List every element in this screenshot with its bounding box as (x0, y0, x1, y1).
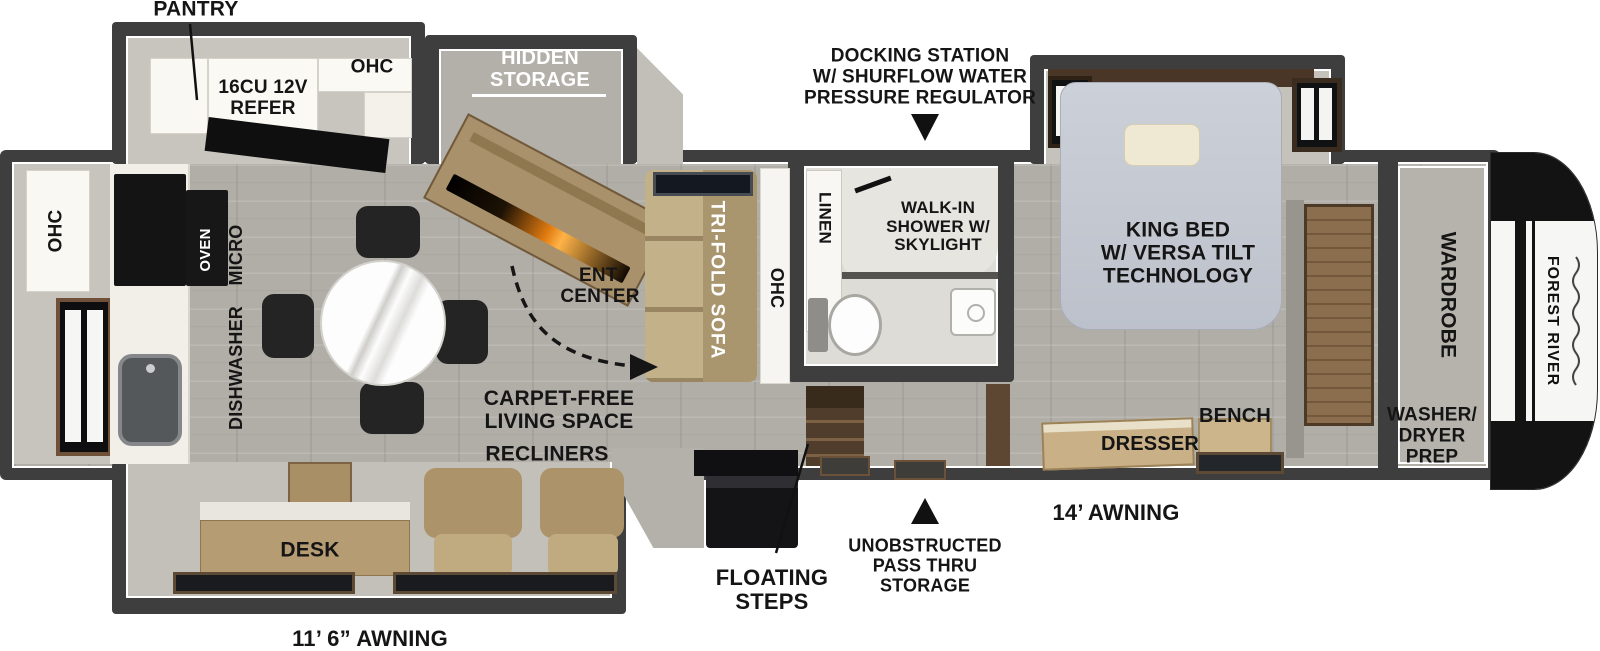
label-shower: WALK-INSHOWER W/SKYLIGHT (886, 199, 990, 255)
dresser-top (1043, 419, 1191, 432)
label-awning-left: 11’ 6” AWNING (292, 627, 448, 651)
front-cap-squiggle-icon (1567, 253, 1585, 393)
arrow-down-icon (911, 114, 939, 141)
label-pass-thru: UNOBSTRUCTEDPASS THRUSTORAGE (848, 536, 1001, 595)
window-pane (1319, 88, 1332, 140)
dinette-table (320, 260, 446, 386)
entry-mat (694, 450, 798, 476)
dinette-chair (262, 294, 314, 358)
closet-sliding-door (1304, 204, 1374, 426)
recliner-seat (548, 534, 618, 576)
window-pane (65, 310, 81, 442)
label-awning-right: 14’ AWNING (1052, 501, 1179, 525)
arrow-up-icon (911, 498, 939, 524)
pass-thru-hatch (820, 456, 870, 476)
label-dishwasher: DISHWASHER (227, 306, 247, 430)
hidden-storage-underline (472, 94, 606, 97)
entry-step-top (706, 476, 798, 488)
front-cap-bottom-band (1491, 421, 1598, 490)
faucet (146, 364, 155, 373)
window-pane (1301, 88, 1314, 140)
label-refer: 16CU 12VREFER (218, 78, 307, 120)
label-washer-dryer: WASHER/DRYERPREP (1387, 406, 1477, 469)
recliner-seat (434, 534, 512, 576)
kitchen-sink (118, 354, 182, 446)
label-recliners: RECLINERS (485, 442, 608, 465)
pass-thru-hatch (894, 460, 946, 480)
desk-top (200, 502, 410, 520)
label-desk: DESK (280, 538, 339, 561)
sofa-cushions (645, 170, 703, 382)
label-tri-fold-sofa: TRI-FOLD SOFA (706, 201, 727, 360)
range-cooktop (114, 174, 186, 286)
bedroom-partition (1286, 200, 1304, 458)
label-linen: LINEN (815, 192, 834, 244)
label-hidden-storage: HIDDENSTORAGE (490, 47, 590, 91)
label-floating-steps: FLOATINGSTEPS (716, 566, 828, 614)
king-bed (1060, 82, 1282, 330)
label-docking-station: DOCKING STATIONW/ SHURFLOW WATERPRESSURE… (804, 47, 1036, 110)
front-cap-stripe-thin (1532, 217, 1535, 425)
label-ohc-sofa: OHC (766, 268, 786, 309)
label-ohc-top: OHC (351, 58, 394, 79)
label-dresser: DRESSER (1101, 433, 1199, 455)
sofa-window (653, 172, 753, 196)
front-cap-top-band (1491, 153, 1598, 221)
rv-floorplan: PANTRY 16CU 12VREFER OHC HIDDENSTORAGE D… (0, 0, 1600, 651)
bedroom-window-right (1292, 78, 1342, 152)
galley-window (56, 298, 112, 456)
label-king-bed: KING BEDW/ VERSA TILTTECHNOLOGY (1101, 218, 1255, 287)
step-edge (806, 438, 864, 441)
bedroom-floor-hatch (1196, 452, 1284, 474)
label-oven: OVEN (198, 228, 215, 271)
bedroom-step-wall (986, 384, 1010, 466)
toilet-tank (808, 298, 828, 352)
label-ohc-left: OHC (47, 210, 68, 253)
label-wardrobe: WARDROBE (1436, 232, 1459, 358)
tri-fold-sofa (645, 170, 757, 382)
desk-slide-window (393, 572, 617, 594)
entry-steps-box (706, 476, 798, 548)
dinette-chair (356, 206, 420, 258)
dinette-chair (360, 382, 424, 434)
label-brand: FOREST RIVER (1543, 256, 1561, 386)
pillow (1124, 124, 1200, 166)
kitchen-slide-cabinet (364, 92, 412, 138)
label-carpet-free: CARPET-FREELIVING SPACE (484, 387, 634, 433)
label-ent-center: ENT.CENTER (560, 266, 639, 308)
step-landing (806, 386, 864, 408)
sink-drain (967, 304, 985, 322)
bathroom-sink (950, 288, 996, 336)
pantry-cabinet (150, 58, 208, 134)
label-bench: BENCH (1199, 405, 1271, 427)
recliner-back (424, 468, 522, 538)
step-edge (806, 420, 864, 423)
label-pantry: PANTRY (153, 0, 238, 21)
window-pane (87, 310, 103, 442)
hidden-storage-wedge (637, 48, 683, 164)
floating-steps-stairs (806, 386, 864, 466)
toilet-bowl (828, 294, 882, 356)
front-cap-stripe (1515, 217, 1526, 425)
label-micro: MICRO (227, 225, 247, 286)
recliner-back (540, 468, 624, 538)
desk-slide-window (173, 572, 355, 594)
